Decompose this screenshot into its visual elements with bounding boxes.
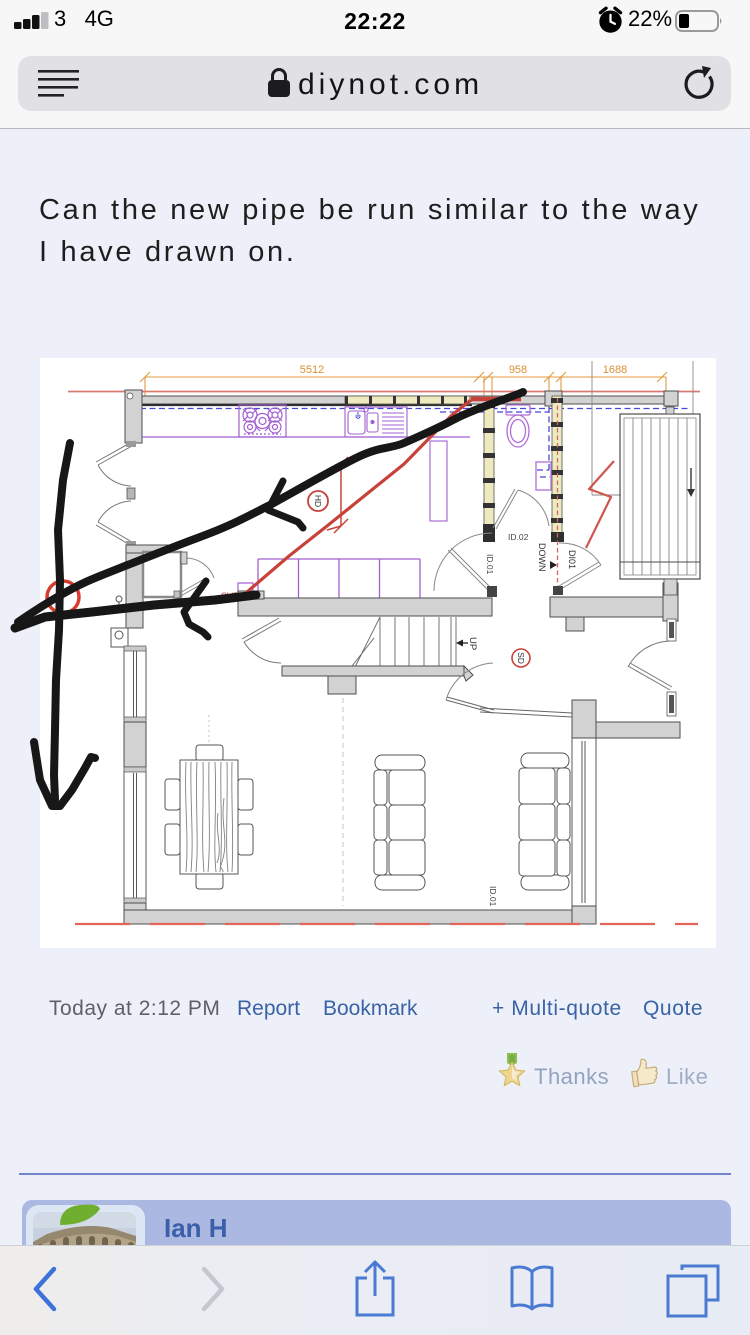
svg-text:DI01: DI01 xyxy=(567,550,577,569)
svg-text:ID.01: ID.01 xyxy=(488,886,498,907)
svg-text:HD: HD xyxy=(313,495,323,507)
svg-text:SVP: SVP xyxy=(221,591,239,601)
svg-text:ID.01: ID.01 xyxy=(485,554,495,575)
svg-text:ID.02: ID.02 xyxy=(508,532,529,542)
svg-text:UP: UP xyxy=(467,637,478,650)
svg-text:1688: 1688 xyxy=(603,364,627,376)
svg-text:5512: 5512 xyxy=(300,364,324,376)
svg-text:DOWN: DOWN xyxy=(537,543,547,572)
svg-text:958: 958 xyxy=(509,364,527,376)
svg-text:SD: SD xyxy=(516,652,526,664)
